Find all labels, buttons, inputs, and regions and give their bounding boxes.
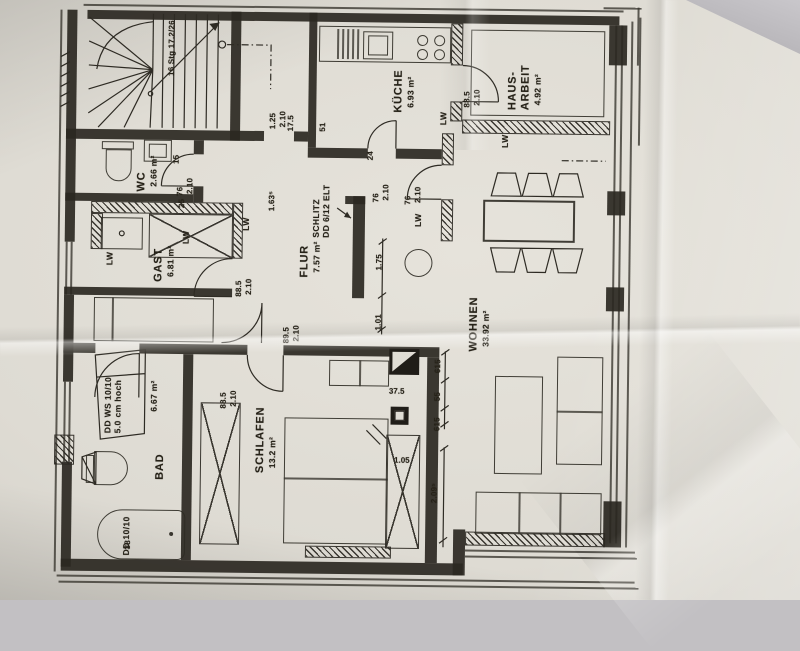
dim-door-kueche: 762.10 (371, 184, 390, 203)
dim-opening-hall: 1.252.10 (268, 111, 287, 130)
dim-wall: 51 (318, 122, 328, 131)
lw-label: LW (241, 217, 251, 231)
dim-wall: 17.5 (286, 115, 296, 131)
dim-wall: 25 (177, 199, 187, 208)
staircase-treads (88, 13, 218, 129)
dim-niche: 1.05 (394, 456, 410, 465)
dim-wohnen-opening: 1.01 (374, 314, 384, 330)
dim-flur-width: 1.75 (374, 254, 384, 270)
dim-door-hausarbeit: 88.52.10 (462, 89, 481, 108)
room-label-bad: BAD (154, 454, 168, 480)
room-label-schlafen: SCHLAFEN 13.2 m² (254, 407, 278, 474)
dim-schlafen-width: 2.09⁵ (430, 483, 440, 503)
room-label-wc: WC 2.66 m² (135, 155, 159, 192)
dim-wall: 24 (366, 151, 376, 160)
dd1010-annotation: DD 10/10 (121, 516, 132, 555)
dim-pier: 615 (433, 359, 443, 373)
schlitz-annotation: SCHLITZ DD 6/12 ELT (311, 184, 332, 238)
dim-flur-upper: 1.63⁵ (267, 191, 277, 211)
room-label-wohnen: WOHNEN 33.92 m² (467, 297, 491, 352)
bathtub-depth-label: 38 (123, 540, 133, 549)
dim-pier: 615 (432, 417, 442, 431)
section-dash-lines (226, 45, 607, 162)
dining-chairs (490, 173, 583, 273)
ddws-annotation: DD WS 10/10 5.0 cm hoch (102, 377, 123, 434)
schlitz-arrow (337, 208, 351, 218)
dim-door-bad: 89.52.10 (281, 325, 300, 344)
lw-label: LW (500, 134, 510, 148)
dim-door-gast: 88.52.10 (234, 278, 253, 297)
dim-chimney-width: 37.5 (389, 387, 405, 396)
dim-door-schlafen: 88.52.10 (219, 390, 238, 409)
dim-wall: 15 (172, 155, 182, 164)
room-label-hausarbeit: HAUS-ARBEIT 4.92 m² (506, 64, 543, 110)
shower-drain-icon (119, 231, 124, 236)
lw-label: LW (438, 112, 448, 126)
floor-plan: 16 Stg 17.2/26 WC 2.66 m² KÜCHE 6.93 m² … (0, 0, 800, 606)
section-marker (219, 41, 226, 48)
dim-pier: 55 (433, 392, 443, 401)
room-label-kueche: KÜCHE 6.93 m² (392, 70, 416, 113)
dim-door-wc: 762.10 (175, 178, 194, 197)
lw-label: LW (181, 231, 191, 245)
room-label-flur: FLUR 7.57 m² (298, 241, 322, 278)
room-label-gast: GAST 6.81 m² (152, 245, 176, 282)
room-area-bad: 6.67 m² (149, 380, 160, 412)
stair-direction-arrow (148, 22, 219, 97)
lw-label: LW (413, 213, 423, 227)
stairs-label: 16 Stg 17.2/26 (167, 20, 177, 76)
dim-door-wohnen: 762.10 (403, 186, 422, 205)
lw-label: LW (104, 252, 114, 266)
